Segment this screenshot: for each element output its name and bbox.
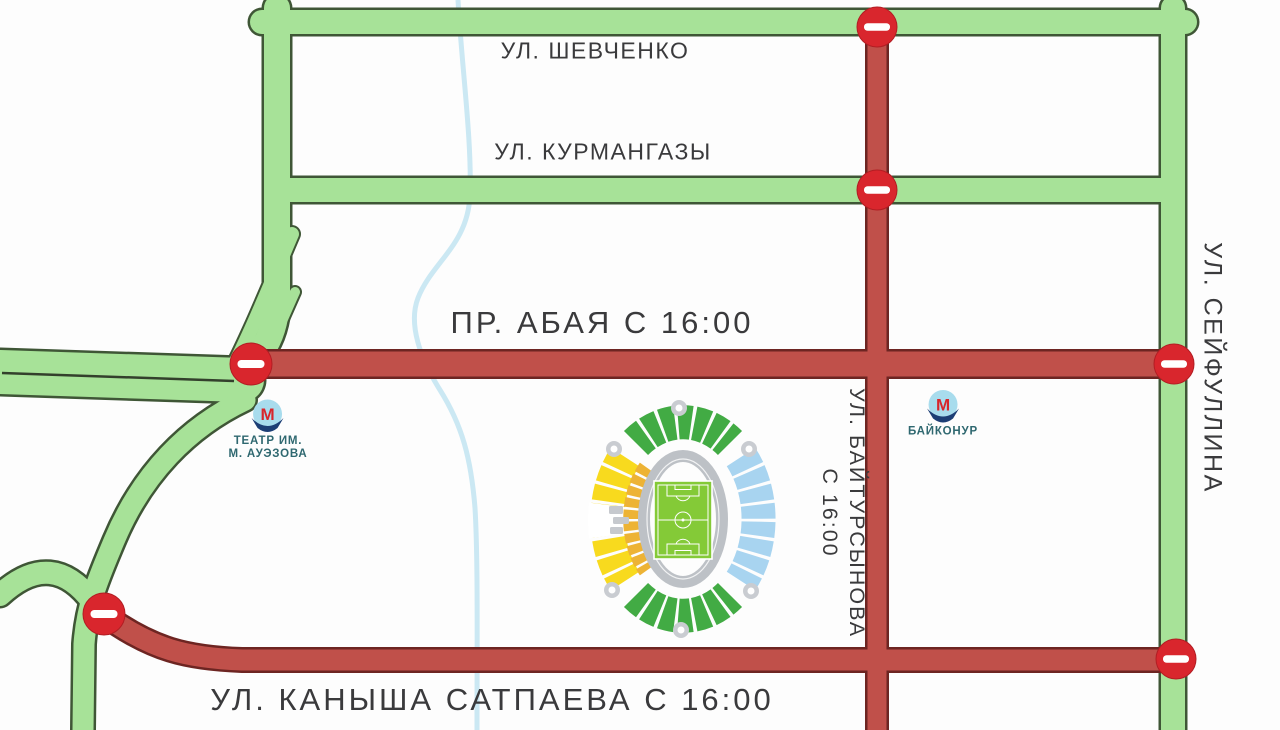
- no-entry-sign: [857, 7, 897, 47]
- metro-station-auezov: М ТЕАТР ИМ. М. АУЭЗОВА: [229, 395, 308, 461]
- stadium-stand-west-gap: [607, 505, 608, 536]
- metro-icon-letter: М: [936, 396, 950, 415]
- no-entry-sign: [1154, 344, 1194, 384]
- stadium-stand-north: [636, 422, 730, 443]
- no-entry-sign: [83, 593, 125, 635]
- metro-auezov-label-line2: М. АУЭЗОВА: [229, 448, 308, 461]
- stadium: [604, 400, 759, 638]
- metro-icon-letter: М: [261, 405, 275, 424]
- label-shevchenko: УЛ. ШЕВЧЕНКО: [501, 38, 690, 65]
- road-satpayev-closed: [107, 617, 1176, 660]
- label-abay: ПР. АБАЯ С 16:00: [451, 305, 754, 341]
- stadium-stand-east-blue: [741, 457, 759, 581]
- label-baytursynov-name: УЛ. БАЙТУРСЫНОВА: [843, 388, 870, 638]
- label-satpayev: УЛ. КАНЫША САТПАЕВА С 16:00: [210, 682, 774, 718]
- metro-auezov-label-line1: ТЕАТР ИМ.: [229, 435, 308, 448]
- metro-station-baikonur: М БАЙКОНУР: [908, 386, 978, 439]
- no-entry-signs: [83, 7, 1196, 679]
- metro-icon: М: [248, 395, 288, 437]
- label-seyfullin: УЛ. СЕЙФУЛЛИНА: [1198, 242, 1227, 494]
- stadium-stand-south: [636, 595, 730, 616]
- label-kurmangazy: УЛ. КУРМАНГАЗЫ: [494, 139, 711, 166]
- no-entry-sign: [857, 170, 897, 210]
- label-baytursynov-time: С 16:00: [816, 388, 843, 638]
- road-closure-map: УЛ. ШЕВЧЕНКО УЛ. КУРМАНГАЗЫ ПР. АБАЯ С 1…: [0, 0, 1280, 730]
- road-left-arc: [0, 573, 92, 601]
- no-entry-sign: [230, 343, 272, 385]
- map-canvas: [0, 0, 1280, 730]
- label-baytursynov: УЛ. БАЙТУРСЫНОВА С 16:00: [816, 388, 870, 638]
- metro-icon: М: [923, 386, 963, 428]
- metro-baikonur-label-line1: БАЙКОНУР: [908, 426, 978, 439]
- interchange-ramp-south: [83, 400, 245, 730]
- no-entry-sign: [1156, 639, 1196, 679]
